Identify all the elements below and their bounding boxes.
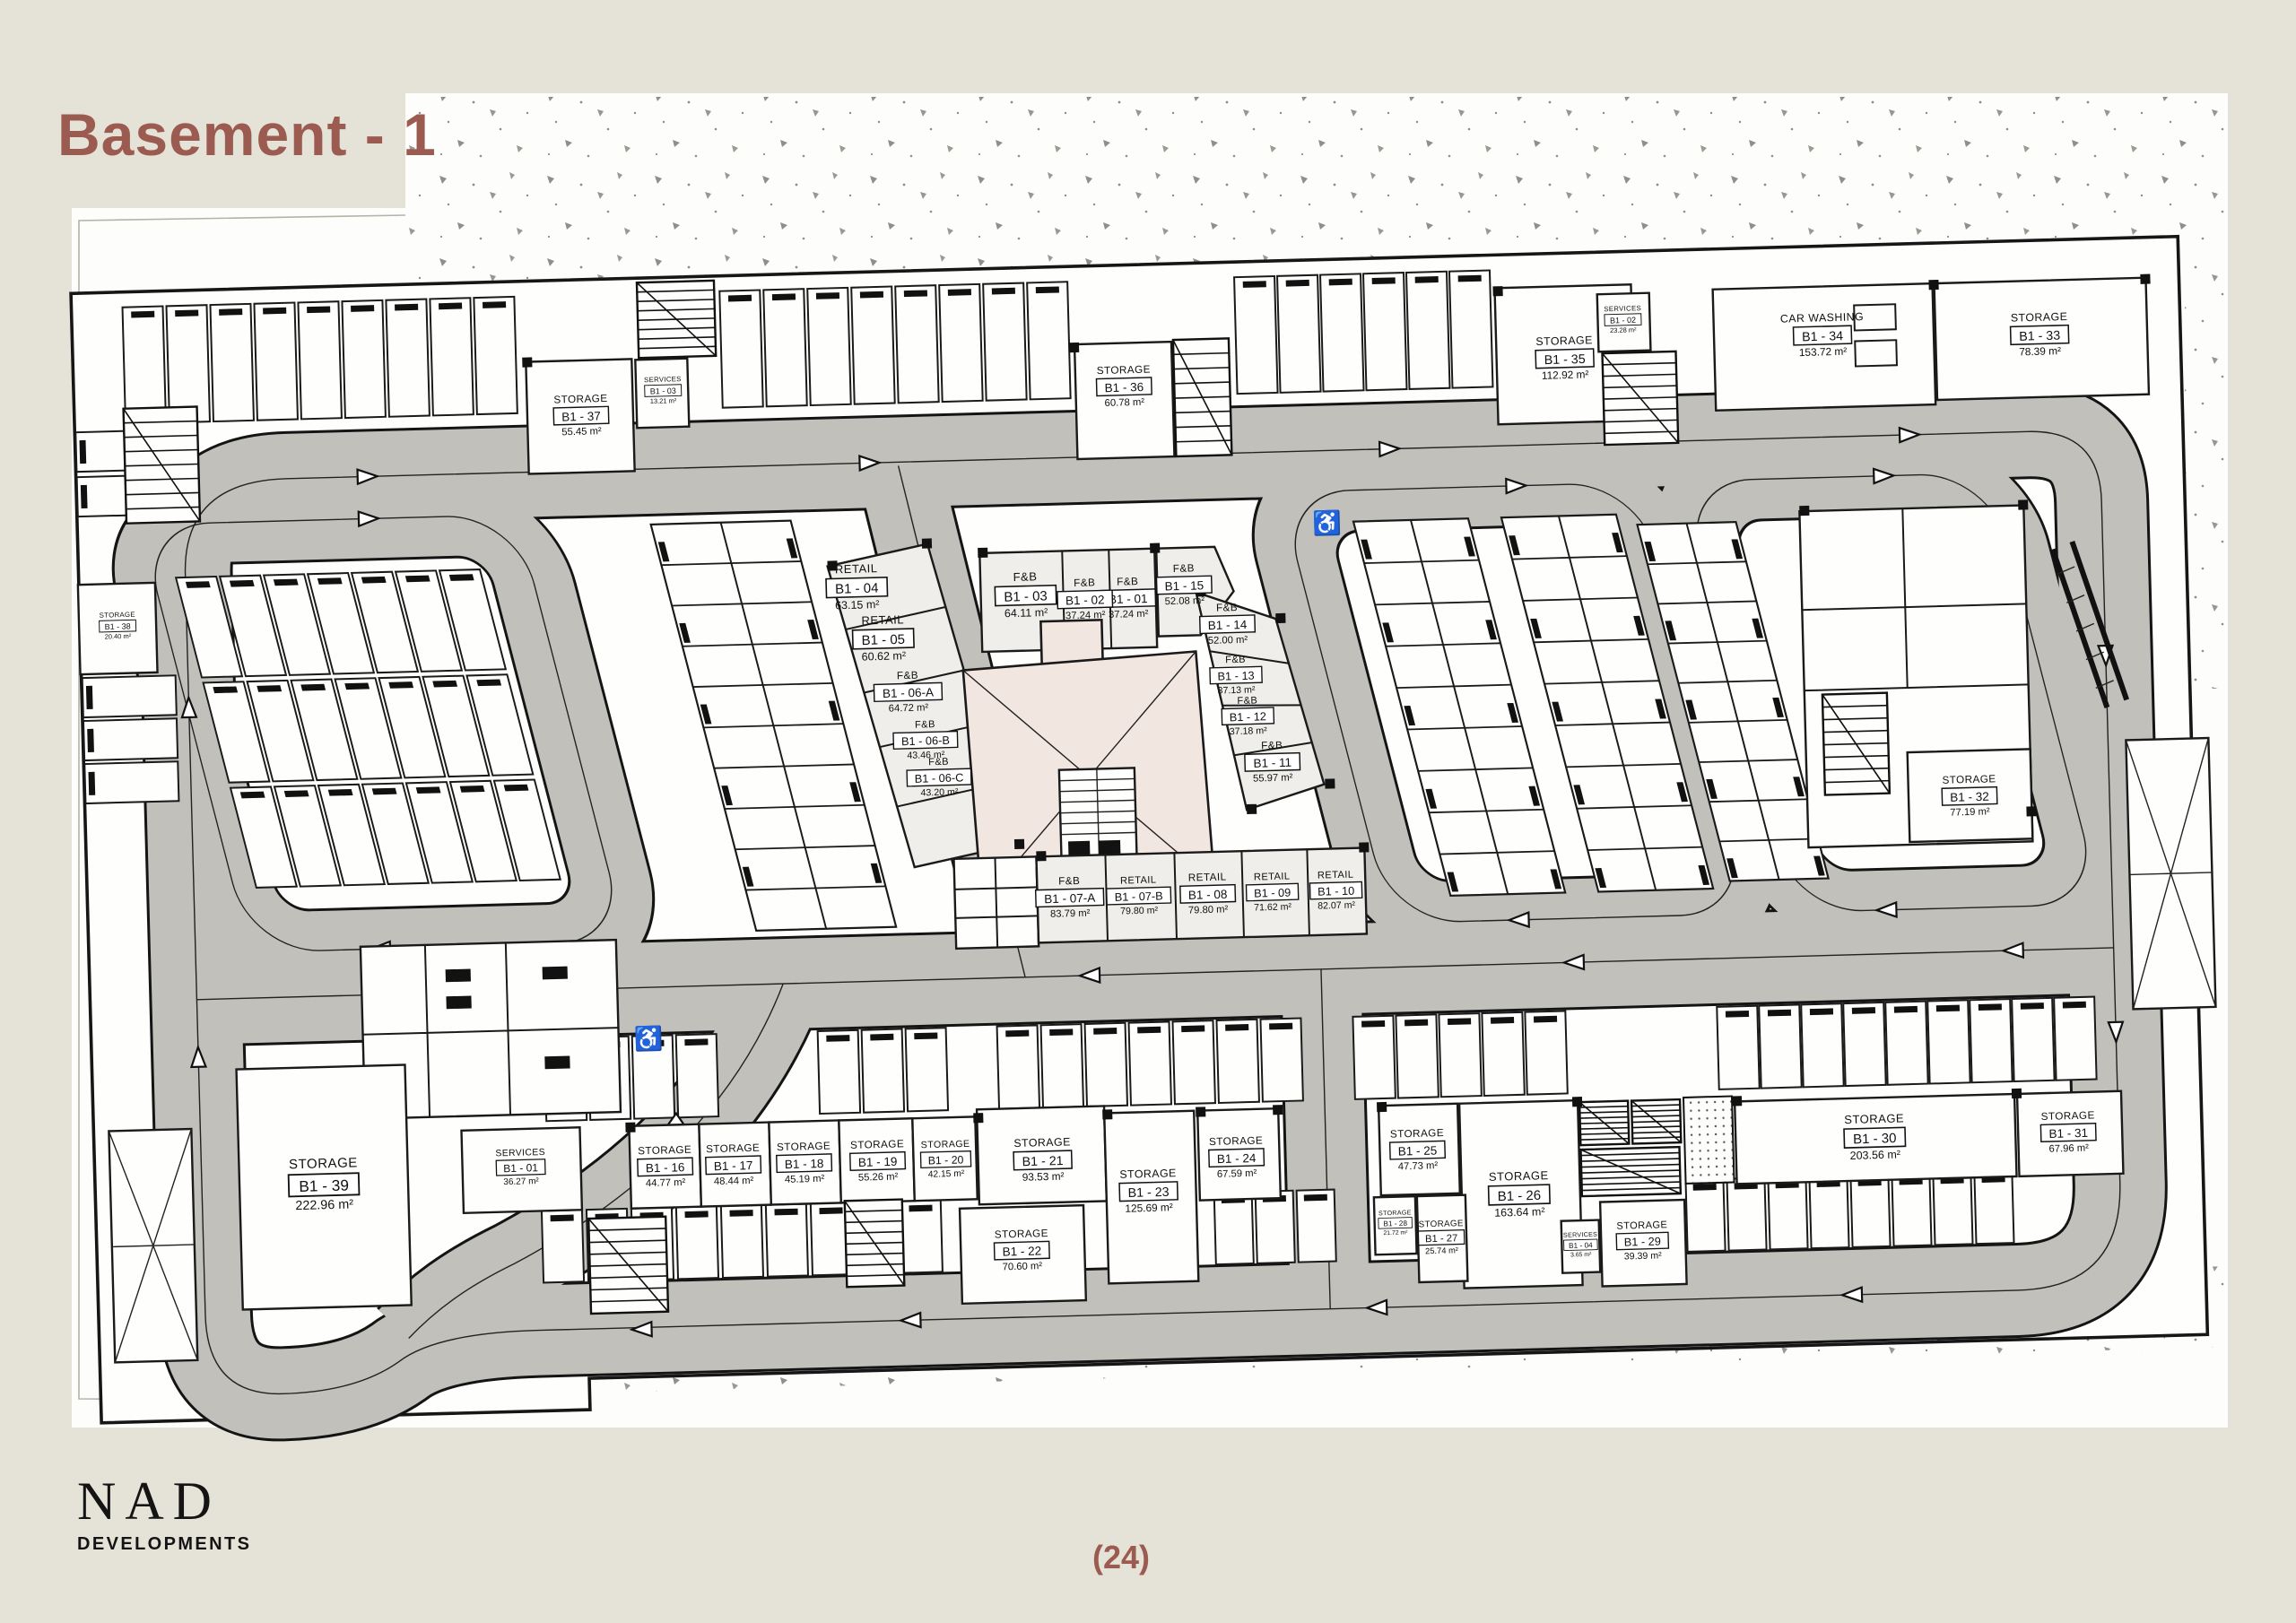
svg-text:STORAGE: STORAGE: [995, 1228, 1048, 1241]
svg-text:B1 - 03: B1 - 03: [1004, 588, 1048, 604]
svg-text:B1 - 29: B1 - 29: [1624, 1235, 1662, 1249]
svg-text:44.77 m²: 44.77 m²: [646, 1177, 686, 1189]
svg-text:STORAGE: STORAGE: [1097, 364, 1151, 378]
svg-text:B1 - 33: B1 - 33: [2019, 329, 2060, 344]
svg-text:42.15 m²: 42.15 m²: [928, 1169, 965, 1180]
svg-text:RETAIL: RETAIL: [835, 561, 878, 576]
accessible-parking-icon: ♿: [1312, 509, 1342, 537]
svg-text:B1 - 38: B1 - 38: [104, 621, 130, 631]
unit-label-b118: STORAGEB1 - 1845.19 m²: [776, 1140, 832, 1185]
svg-text:B1 - 04: B1 - 04: [835, 581, 879, 597]
svg-text:B1 - 05: B1 - 05: [861, 632, 905, 648]
svg-text:B1 - 28: B1 - 28: [1383, 1219, 1407, 1228]
svg-text:F&B: F&B: [1225, 655, 1246, 666]
svg-text:STORAGE: STORAGE: [638, 1144, 691, 1158]
svg-text:STORAGE: STORAGE: [706, 1142, 760, 1156]
svg-text:B1 - 26: B1 - 26: [1497, 1188, 1541, 1204]
svg-text:STORAGE: STORAGE: [1489, 1168, 1549, 1184]
svg-text:60.62 m²: 60.62 m²: [861, 649, 906, 663]
core-stair-landing: [1068, 841, 1090, 856]
svg-text:203.56 m²: 203.56 m²: [1849, 1148, 1900, 1162]
svg-text:B1 - 20: B1 - 20: [928, 1153, 964, 1167]
svg-text:B1 - 36: B1 - 36: [1104, 380, 1144, 395]
svg-text:SERVICES: SERVICES: [1563, 1231, 1597, 1239]
unit-label-b116: STORAGEB1 - 1644.77 m²: [637, 1144, 693, 1190]
unit-label-b130: STORAGEB1 - 30203.56 m²: [1844, 1111, 1906, 1162]
svg-text:B1 - 01: B1 - 01: [1109, 592, 1148, 606]
unit-label-b132: STORAGEB1 - 3277.19 m²: [1942, 773, 1998, 819]
svg-text:63.15 m²: 63.15 m²: [835, 598, 880, 612]
svg-text:20.40 m²: 20.40 m²: [105, 632, 132, 641]
svg-text:RETAIL: RETAIL: [1120, 874, 1157, 886]
svg-text:STORAGE: STORAGE: [1209, 1134, 1263, 1148]
svg-text:B1 - 07-A: B1 - 07-A: [1044, 891, 1095, 907]
svg-text:37.13 m²: 37.13 m²: [1217, 684, 1256, 696]
svg-text:SERVICES: SERVICES: [1604, 304, 1641, 313]
svg-text:F&B: F&B: [1074, 577, 1095, 589]
unit-label-b126: STORAGEB1 - 26163.64 m²: [1488, 1168, 1550, 1219]
svg-text:222.96 m²: 222.96 m²: [295, 1197, 353, 1213]
svg-text:77.19 m²: 77.19 m²: [1950, 806, 1990, 818]
svg-text:37.18 m²: 37.18 m²: [1230, 725, 1268, 737]
unit-label-svc03: SERVICESB1 - 0313.21 m²: [644, 375, 683, 405]
page-number: (24): [1031, 1539, 1211, 1576]
accessible-parking-icon: ♿: [633, 1025, 663, 1053]
svg-text:STORAGE: STORAGE: [1419, 1219, 1465, 1229]
svg-text:39.39 m²: 39.39 m²: [1624, 1250, 1663, 1262]
svg-text:B1 - 12: B1 - 12: [1230, 709, 1267, 724]
svg-text:67.59 m²: 67.59 m²: [1217, 1168, 1257, 1180]
unit-label-b133: STORAGEB1 - 3378.39 m²: [2010, 310, 2069, 359]
logo-wordmark: NAD: [77, 1471, 251, 1532]
svg-text:82.07 m²: 82.07 m²: [1318, 899, 1356, 911]
logo-subtitle: DEVELOPMENTS: [77, 1534, 251, 1555]
svg-text:STORAGE: STORAGE: [921, 1139, 970, 1150]
svg-text:F&B: F&B: [928, 757, 949, 768]
developer-logo: NAD DEVELOPMENTS: [77, 1471, 251, 1555]
svg-text:79.80 m²: 79.80 m²: [1188, 904, 1229, 916]
svg-text:43.20 m²: 43.20 m²: [920, 786, 959, 798]
unit-label-b120: STORAGEB1 - 2042.15 m²: [920, 1139, 971, 1180]
svg-text:F&B: F&B: [1117, 576, 1138, 588]
svg-text:52.08 m²: 52.08 m²: [1164, 595, 1205, 607]
unit-label-b139: STORAGEB1 - 39222.96 m²: [288, 1155, 360, 1213]
svg-text:B1 - 06-C: B1 - 06-C: [915, 770, 964, 785]
svg-text:163.64 m²: 163.64 m²: [1494, 1205, 1545, 1219]
svg-text:SERVICES: SERVICES: [644, 375, 682, 384]
svg-text:B1 - 31: B1 - 31: [2048, 1126, 2088, 1141]
svg-text:55.26 m²: 55.26 m²: [858, 1171, 899, 1183]
svg-text:STORAGE: STORAGE: [1616, 1219, 1667, 1232]
svg-text:B1 - 19: B1 - 19: [858, 1155, 898, 1169]
svg-text:B1 - 22: B1 - 22: [1002, 1244, 1041, 1258]
svg-text:B1 - 27: B1 - 27: [1425, 1233, 1458, 1245]
svg-text:STORAGE: STORAGE: [2011, 310, 2068, 325]
svg-text:STORAGE: STORAGE: [1844, 1111, 1904, 1126]
unit-label-b123: STORAGEB1 - 23125.69 m²: [1119, 1167, 1178, 1215]
unit-label-b131: STORAGEB1 - 3167.96 m²: [2040, 1109, 2097, 1155]
svg-text:60.78 m²: 60.78 m²: [1104, 397, 1144, 409]
svg-text:B1 - 09: B1 - 09: [1254, 886, 1291, 900]
svg-text:B1 - 23: B1 - 23: [1127, 1185, 1169, 1201]
svg-text:B1 - 34: B1 - 34: [1802, 329, 1843, 344]
unit-label-b119: STORAGEB1 - 1955.26 m²: [849, 1138, 906, 1184]
left-ramp-block: [109, 1129, 197, 1362]
svg-text:B1 - 16: B1 - 16: [646, 1160, 685, 1175]
svg-text:F&B: F&B: [915, 719, 935, 731]
svg-text:25.74 m²: 25.74 m²: [1425, 1245, 1458, 1255]
svg-text:83.79 m²: 83.79 m²: [1050, 908, 1091, 920]
unit-label-b128: STORAGEB1 - 2821.72 m²: [1378, 1209, 1413, 1237]
svg-text:48.44 m²: 48.44 m²: [714, 1176, 754, 1187]
svg-text:B1 - 37: B1 - 37: [561, 409, 601, 423]
svg-text:STORAGE: STORAGE: [1942, 773, 1996, 786]
svg-text:3.65 m²: 3.65 m²: [1570, 1252, 1592, 1259]
svg-text:64.72 m²: 64.72 m²: [889, 702, 929, 714]
svg-text:B1 - 30: B1 - 30: [1853, 1131, 1897, 1147]
svg-text:STORAGE: STORAGE: [100, 611, 135, 620]
svg-text:47.73 m²: 47.73 m²: [1398, 1160, 1439, 1172]
svg-text:78.39 m²: 78.39 m²: [2019, 344, 2061, 358]
svg-text:13.21 m²: 13.21 m²: [650, 396, 677, 405]
svg-text:67.96 m²: 67.96 m²: [2048, 1143, 2089, 1155]
svg-text:B1 - 10: B1 - 10: [1318, 884, 1355, 898]
svg-text:B1 - 03: B1 - 03: [650, 386, 676, 396]
svg-text:125.69 m²: 125.69 m²: [1125, 1201, 1173, 1214]
unit-label-b124: STORAGEB1 - 2467.59 m²: [1208, 1134, 1265, 1180]
svg-text:STORAGE: STORAGE: [1119, 1167, 1177, 1181]
svg-text:37.24 m²: 37.24 m²: [1065, 610, 1106, 621]
svg-text:F&B: F&B: [1058, 875, 1080, 888]
core-stair-landing: [1099, 840, 1120, 855]
svg-text:93.53 m²: 93.53 m²: [1022, 1170, 1065, 1184]
svg-text:B1 - 39: B1 - 39: [299, 1176, 349, 1194]
svg-text:55.97 m²: 55.97 m²: [1253, 772, 1293, 784]
svg-text:RETAIL: RETAIL: [1318, 870, 1354, 881]
svg-text:B1 - 13: B1 - 13: [1217, 669, 1255, 683]
unit-label-b136: STORAGEB1 - 3660.78 m²: [1096, 364, 1152, 410]
unit-label-b117: STORAGEB1 - 1748.44 m²: [705, 1142, 761, 1188]
svg-text:RETAIL: RETAIL: [1254, 871, 1291, 882]
unit-label-svc01: SERVICESB1 - 0136.27 m²: [495, 1148, 546, 1187]
svg-text:B1 - 15: B1 - 15: [1164, 578, 1204, 593]
svg-text:B1 - 35: B1 - 35: [1544, 352, 1586, 368]
svg-text:SERVICES: SERVICES: [495, 1148, 545, 1159]
svg-text:45.19 m²: 45.19 m²: [785, 1174, 825, 1185]
svg-text:STORAGE: STORAGE: [553, 393, 607, 406]
svg-text:B1 - 08: B1 - 08: [1188, 888, 1228, 902]
svg-text:RETAIL: RETAIL: [861, 612, 904, 627]
svg-text:STORAGE: STORAGE: [2040, 1109, 2094, 1123]
svg-text:B1 - 18: B1 - 18: [785, 1157, 824, 1171]
floor-plan-page: ♿ ♿ F&BB1 - 0137.24 m²F&BB1 - 0237.24 m²…: [0, 0, 2296, 1623]
svg-text:B1 - 11: B1 - 11: [1253, 756, 1291, 770]
svg-text:21.72 m²: 21.72 m²: [1383, 1229, 1408, 1237]
svg-text:37.24 m²: 37.24 m²: [1109, 609, 1149, 621]
svg-text:B1 - 32: B1 - 32: [1950, 790, 1989, 804]
svg-text:23.28 m²: 23.28 m²: [1610, 325, 1637, 334]
unit-label-b121: STORAGEB1 - 2193.53 m²: [1013, 1135, 1073, 1184]
unit-label-b138: STORAGEB1 - 3820.40 m²: [99, 611, 136, 641]
unit-label-b127: STORAGEB1 - 2725.74 m²: [1418, 1219, 1465, 1255]
unit-label-b129: STORAGEB1 - 2939.39 m²: [1616, 1219, 1669, 1263]
unit-label-b135: STORAGEB1 - 35112.92 m²: [1535, 334, 1595, 382]
svg-text:36.27 m²: 36.27 m²: [503, 1176, 539, 1187]
svg-text:B1 - 04: B1 - 04: [1569, 1241, 1593, 1250]
svg-text:F&B: F&B: [1237, 695, 1257, 707]
floor-plan-drawing: ♿ ♿ F&BB1 - 0137.24 m²F&BB1 - 0237.24 m²…: [0, 0, 2296, 1623]
hatched-zone: [1683, 1097, 1735, 1184]
svg-text:F&B: F&B: [1216, 602, 1238, 614]
svg-text:B1 - 06-A: B1 - 06-A: [883, 685, 934, 700]
svg-text:71.62 m²: 71.62 m²: [1254, 901, 1292, 913]
svg-text:STORAGE: STORAGE: [289, 1155, 358, 1172]
svg-text:64.11 m²: 64.11 m²: [1004, 606, 1048, 620]
svg-text:CAR WASHING: CAR WASHING: [1780, 310, 1865, 325]
page-title: Basement - 1: [57, 100, 437, 169]
svg-text:B1 - 17: B1 - 17: [714, 1159, 753, 1173]
svg-text:F&B: F&B: [1173, 562, 1195, 575]
svg-text:B1 - 01: B1 - 01: [503, 1161, 538, 1175]
svg-text:STORAGE: STORAGE: [1390, 1127, 1444, 1141]
svg-text:52.00 m²: 52.00 m²: [1208, 635, 1248, 647]
unit-label-b122: STORAGEB1 - 2270.60 m²: [994, 1228, 1050, 1273]
svg-text:STORAGE: STORAGE: [1378, 1209, 1412, 1217]
unit-label-b137: STORAGEB1 - 3755.45 m²: [553, 393, 610, 438]
svg-text:B1 - 14: B1 - 14: [1208, 618, 1248, 632]
svg-text:B1 - 21: B1 - 21: [1022, 1154, 1063, 1169]
svg-text:F&B: F&B: [1013, 569, 1037, 584]
svg-text:B1 - 02: B1 - 02: [1610, 316, 1636, 325]
svg-text:B1 - 07-B: B1 - 07-B: [1115, 889, 1163, 903]
svg-text:F&B: F&B: [1261, 740, 1283, 752]
svg-text:B1 - 25: B1 - 25: [1398, 1143, 1438, 1158]
svg-text:112.92 m²: 112.92 m²: [1542, 368, 1589, 381]
unit-label-b125: STORAGEB1 - 2547.73 m²: [1389, 1127, 1446, 1173]
svg-text:STORAGE: STORAGE: [850, 1138, 904, 1151]
svg-text:RETAIL: RETAIL: [1188, 871, 1227, 883]
svg-text:STORAGE: STORAGE: [1535, 334, 1593, 348]
svg-text:B1 - 24: B1 - 24: [1217, 1151, 1257, 1166]
svg-text:F&B: F&B: [897, 670, 918, 682]
svg-text:B1 - 02: B1 - 02: [1065, 593, 1105, 607]
svg-text:79.80 m²: 79.80 m²: [1120, 905, 1159, 916]
svg-text:70.60 m²: 70.60 m²: [1002, 1261, 1042, 1272]
svg-text:B1 - 06-B: B1 - 06-B: [901, 733, 950, 748]
svg-text:55.45 m²: 55.45 m²: [561, 426, 602, 438]
unit-label-svc02: SERVICESB1 - 0223.28 m²: [1604, 304, 1642, 334]
svg-text:153.72 m²: 153.72 m²: [1799, 345, 1848, 359]
svg-text:STORAGE: STORAGE: [1013, 1135, 1071, 1150]
svg-text:STORAGE: STORAGE: [777, 1141, 831, 1154]
